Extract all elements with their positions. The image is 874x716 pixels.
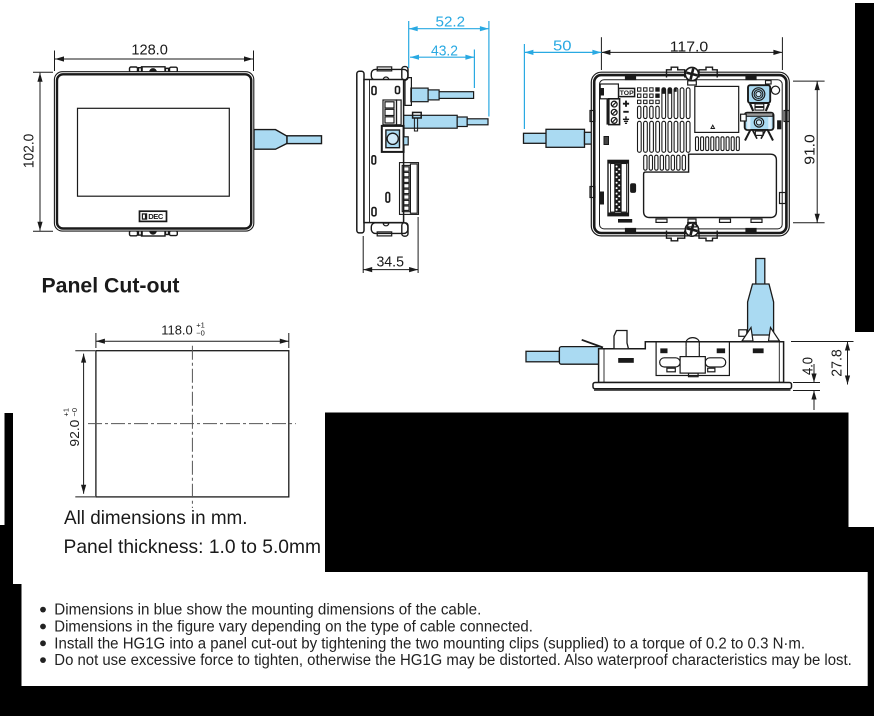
svg-text:4.0: 4.0 [799, 357, 816, 375]
svg-text:102.0: 102.0 [21, 134, 38, 169]
svg-text:27.8: 27.8 [829, 349, 846, 377]
svg-text:Install the HG1G into a panel: Install the HG1G into a panel cut-out by… [54, 635, 805, 652]
svg-text:Panel Cut-out: Panel Cut-out [42, 272, 180, 297]
svg-text:52.2: 52.2 [436, 13, 466, 30]
svg-text:Do not use excessive force to: Do not use excessive force to tighten, o… [54, 652, 852, 669]
svg-text:Panel thickness: 1.0 to 5.0mm: Panel thickness: 1.0 to 5.0mm [64, 536, 322, 558]
svg-text:117.0: 117.0 [670, 38, 709, 55]
svg-text:92.0: 92.0 [67, 420, 82, 447]
svg-text:91.0: 91.0 [802, 134, 819, 165]
svg-text:−0: −0 [196, 329, 205, 338]
svg-text:118.0: 118.0 [161, 323, 193, 338]
svg-text:DEC: DEC [148, 212, 164, 221]
svg-text:−0: −0 [70, 408, 79, 417]
svg-text:Dimensions in the figure vary: Dimensions in the figure vary depending … [54, 619, 533, 636]
svg-text:TOP: TOP [620, 90, 634, 97]
svg-text:34.5: 34.5 [376, 254, 404, 271]
svg-text:50: 50 [553, 38, 572, 55]
svg-text:All dimensions in mm.: All dimensions in mm. [64, 507, 248, 529]
svg-text:43.2: 43.2 [431, 42, 458, 59]
svg-text:128.0: 128.0 [131, 42, 168, 59]
svg-text:Dimensions in blue show the mo: Dimensions in blue show the mounting dim… [54, 602, 481, 619]
